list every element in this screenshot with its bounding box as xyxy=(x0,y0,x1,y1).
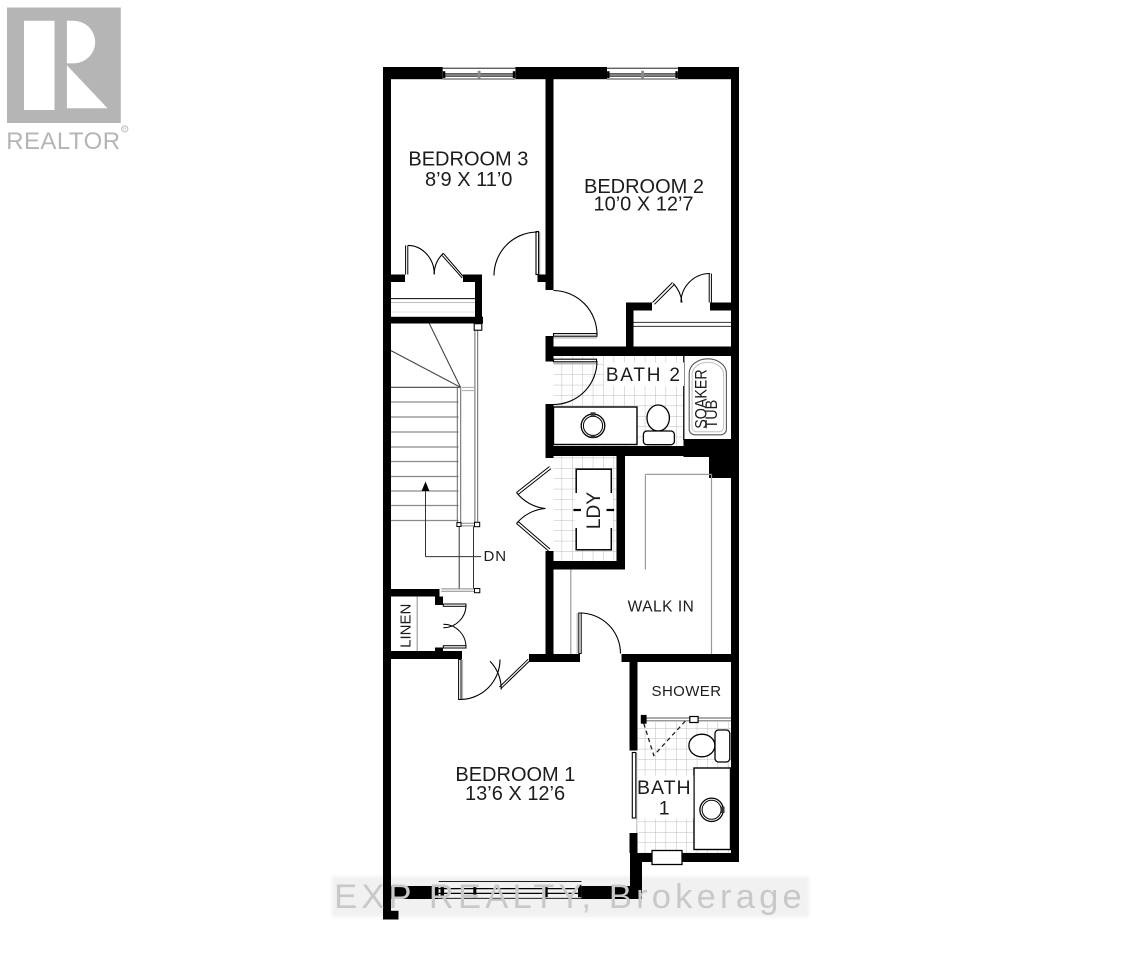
svg-text:TUB: TUB xyxy=(703,400,721,429)
svg-text:DN: DN xyxy=(484,548,507,565)
svg-text:LDY: LDY xyxy=(584,491,605,529)
svg-text:10’0 X 12’7: 10’0 X 12’7 xyxy=(593,193,693,215)
svg-text:REALTOR: REALTOR xyxy=(6,128,120,155)
svg-text:SHOWER: SHOWER xyxy=(652,683,722,700)
svg-text:LINEN: LINEN xyxy=(398,604,415,648)
svg-text:13’6 X 12’6: 13’6 X 12’6 xyxy=(465,783,565,805)
svg-text:WALK IN: WALK IN xyxy=(628,598,695,615)
svg-text:BATH: BATH xyxy=(637,777,692,799)
svg-text:1: 1 xyxy=(659,798,670,820)
svg-text:BATH 2: BATH 2 xyxy=(606,365,682,386)
svg-text:BEDROOM 3: BEDROOM 3 xyxy=(408,149,528,171)
svg-text:8’9 X 11’0: 8’9 X 11’0 xyxy=(425,169,512,191)
svg-text:EXP REALTY, Brokerage: EXP REALTY, Brokerage xyxy=(334,878,806,916)
